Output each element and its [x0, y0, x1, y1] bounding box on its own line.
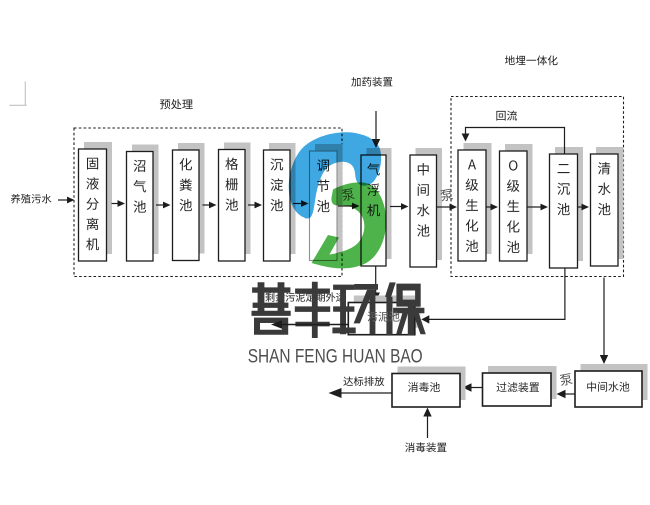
svg-text:SHAN FENG HUAN BAO: SHAN FENG HUAN BAO [248, 346, 423, 368]
